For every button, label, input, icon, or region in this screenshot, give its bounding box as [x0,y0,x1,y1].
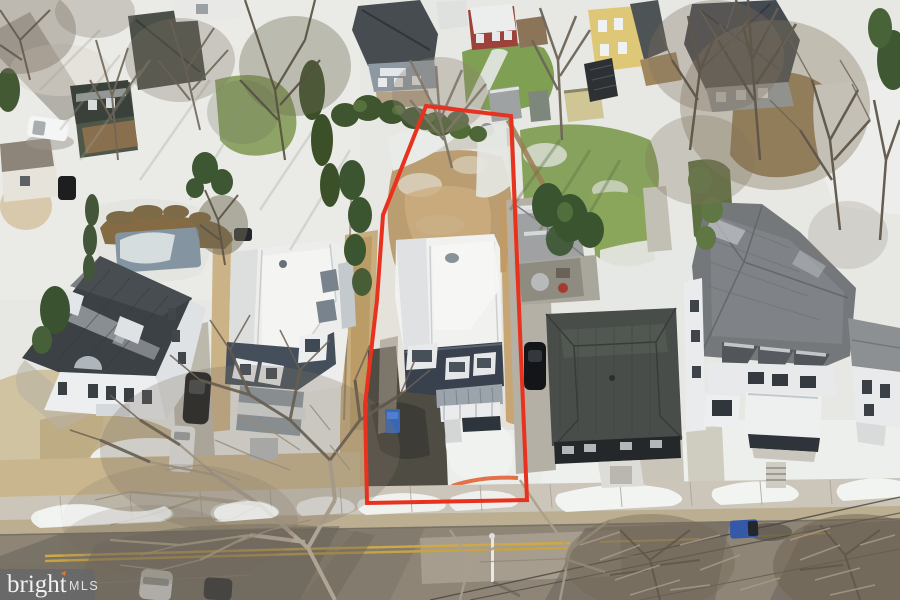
svg-text:bright: bright [7,571,67,598]
svg-text:MLS: MLS [69,579,99,593]
